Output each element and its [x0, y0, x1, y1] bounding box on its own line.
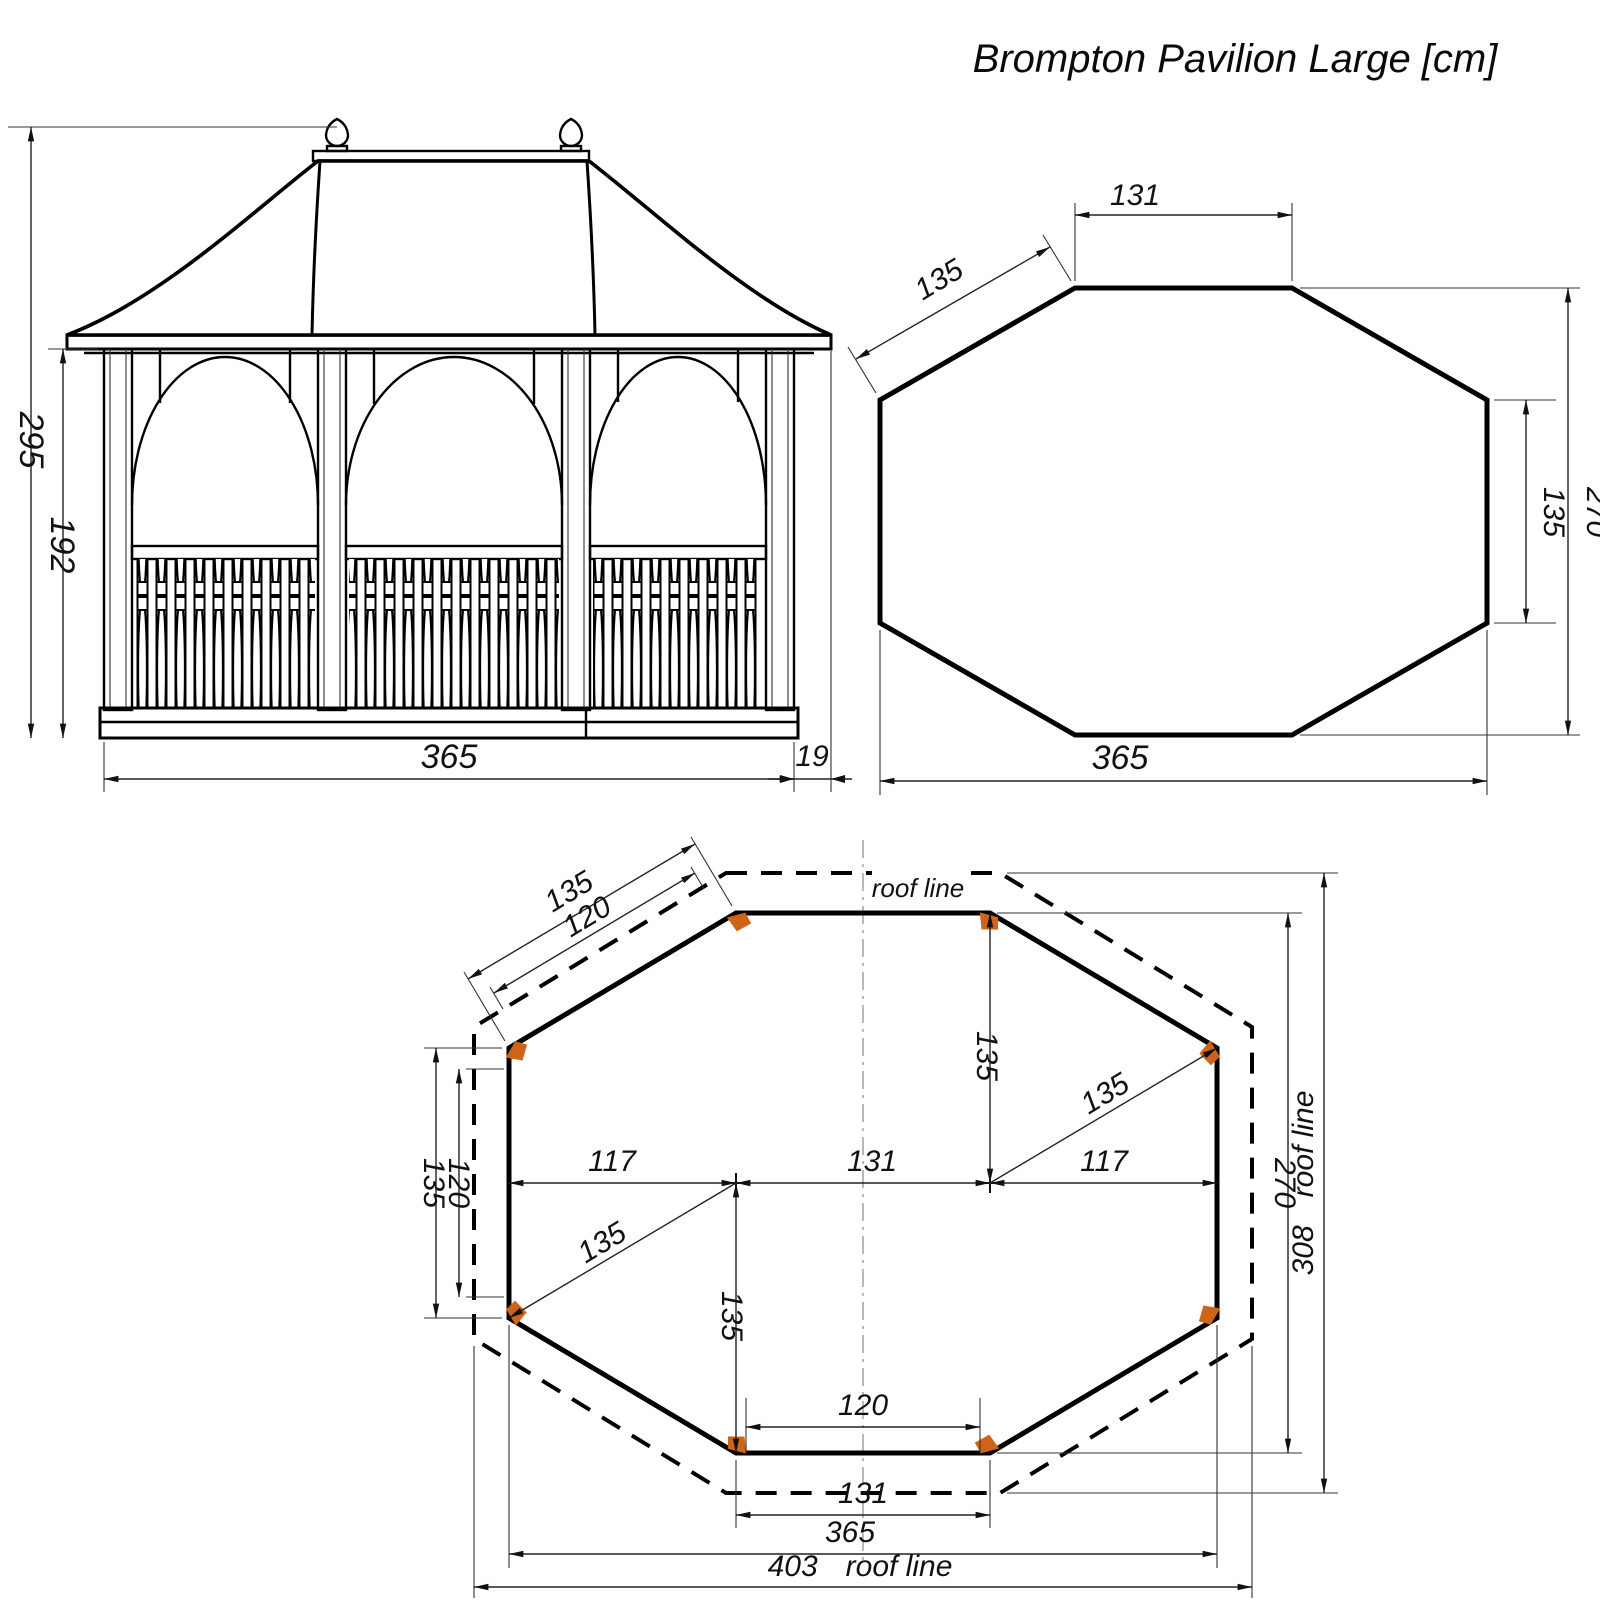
dim-roof-depth-label: roof line [1287, 1091, 1320, 1198]
balusters [349, 559, 559, 708]
dim-elevation-width: 365 [421, 738, 478, 776]
balusters [593, 559, 763, 708]
dim-total-height: 295 [12, 411, 50, 469]
post [766, 349, 794, 710]
post [562, 349, 590, 710]
dim-front-edge: 131 [1110, 179, 1160, 212]
dim-side-clear: 120 [442, 1158, 475, 1208]
dim-rise-to-front: 135 [970, 1031, 1003, 1081]
dim-drop-to-back: 135 [715, 1291, 748, 1341]
octagon-outline [880, 288, 1487, 735]
page-title: Brompton Pavilion Large [cm] [973, 37, 1499, 81]
dim-eaves-height: 192 [43, 517, 81, 574]
dim-front-clear: 120 [838, 1389, 888, 1422]
dim-center-span: 131 [847, 1145, 897, 1178]
dim-roof-width-label: roof line [846, 1550, 953, 1583]
floor-plan-dimensions: 135 120 135 120 117 131 117 135 [417, 837, 1338, 1598]
dim-roof-width-value: 403 [768, 1550, 818, 1583]
roof-line-label: roof line [872, 873, 965, 903]
floor-base [100, 708, 798, 738]
dim-front-edge: 131 [838, 1477, 888, 1510]
post [318, 349, 346, 710]
front-elevation-view: 295 192 365 19 [8, 119, 852, 792]
roof-silhouette-outline [67, 161, 831, 335]
finial-left-icon [326, 119, 348, 151]
dim-width: 365 [1092, 739, 1149, 777]
eaves-fascia [67, 335, 831, 349]
balusters [135, 559, 315, 708]
floor-plan-view: roof line 135 120 [417, 837, 1338, 1598]
technical-drawing: Brompton Pavilion Large [cm] [0, 0, 1600, 1600]
finial-right-icon [560, 119, 582, 151]
dim-side-edge: 135 [1537, 487, 1570, 537]
roof [60, 119, 840, 353]
dim-diag-to-right-post: 135 [1075, 1067, 1135, 1121]
dim-roof-depth: 308roof line [1287, 1091, 1320, 1276]
dim-depth: 270 [1580, 486, 1600, 537]
dim-roof-overhang: 19 [795, 740, 829, 773]
railings [132, 546, 766, 708]
bay-arches [132, 349, 766, 505]
dim-left-run: 117 [588, 1145, 637, 1178]
dim-roof-width: 403roof line [768, 1550, 953, 1583]
roof-plan-view: 131 135 135 270 365 [848, 179, 1600, 795]
drawing-sheet: Brompton Pavilion Large [cm] [0, 0, 1600, 1600]
post [104, 349, 132, 710]
dim-right-run: 117 [1080, 1145, 1129, 1178]
dim-width: 365 [825, 1516, 875, 1549]
dim-diag-to-left-post: 135 [572, 1216, 632, 1270]
dim-roof-depth-value: 308 [1287, 1225, 1320, 1275]
